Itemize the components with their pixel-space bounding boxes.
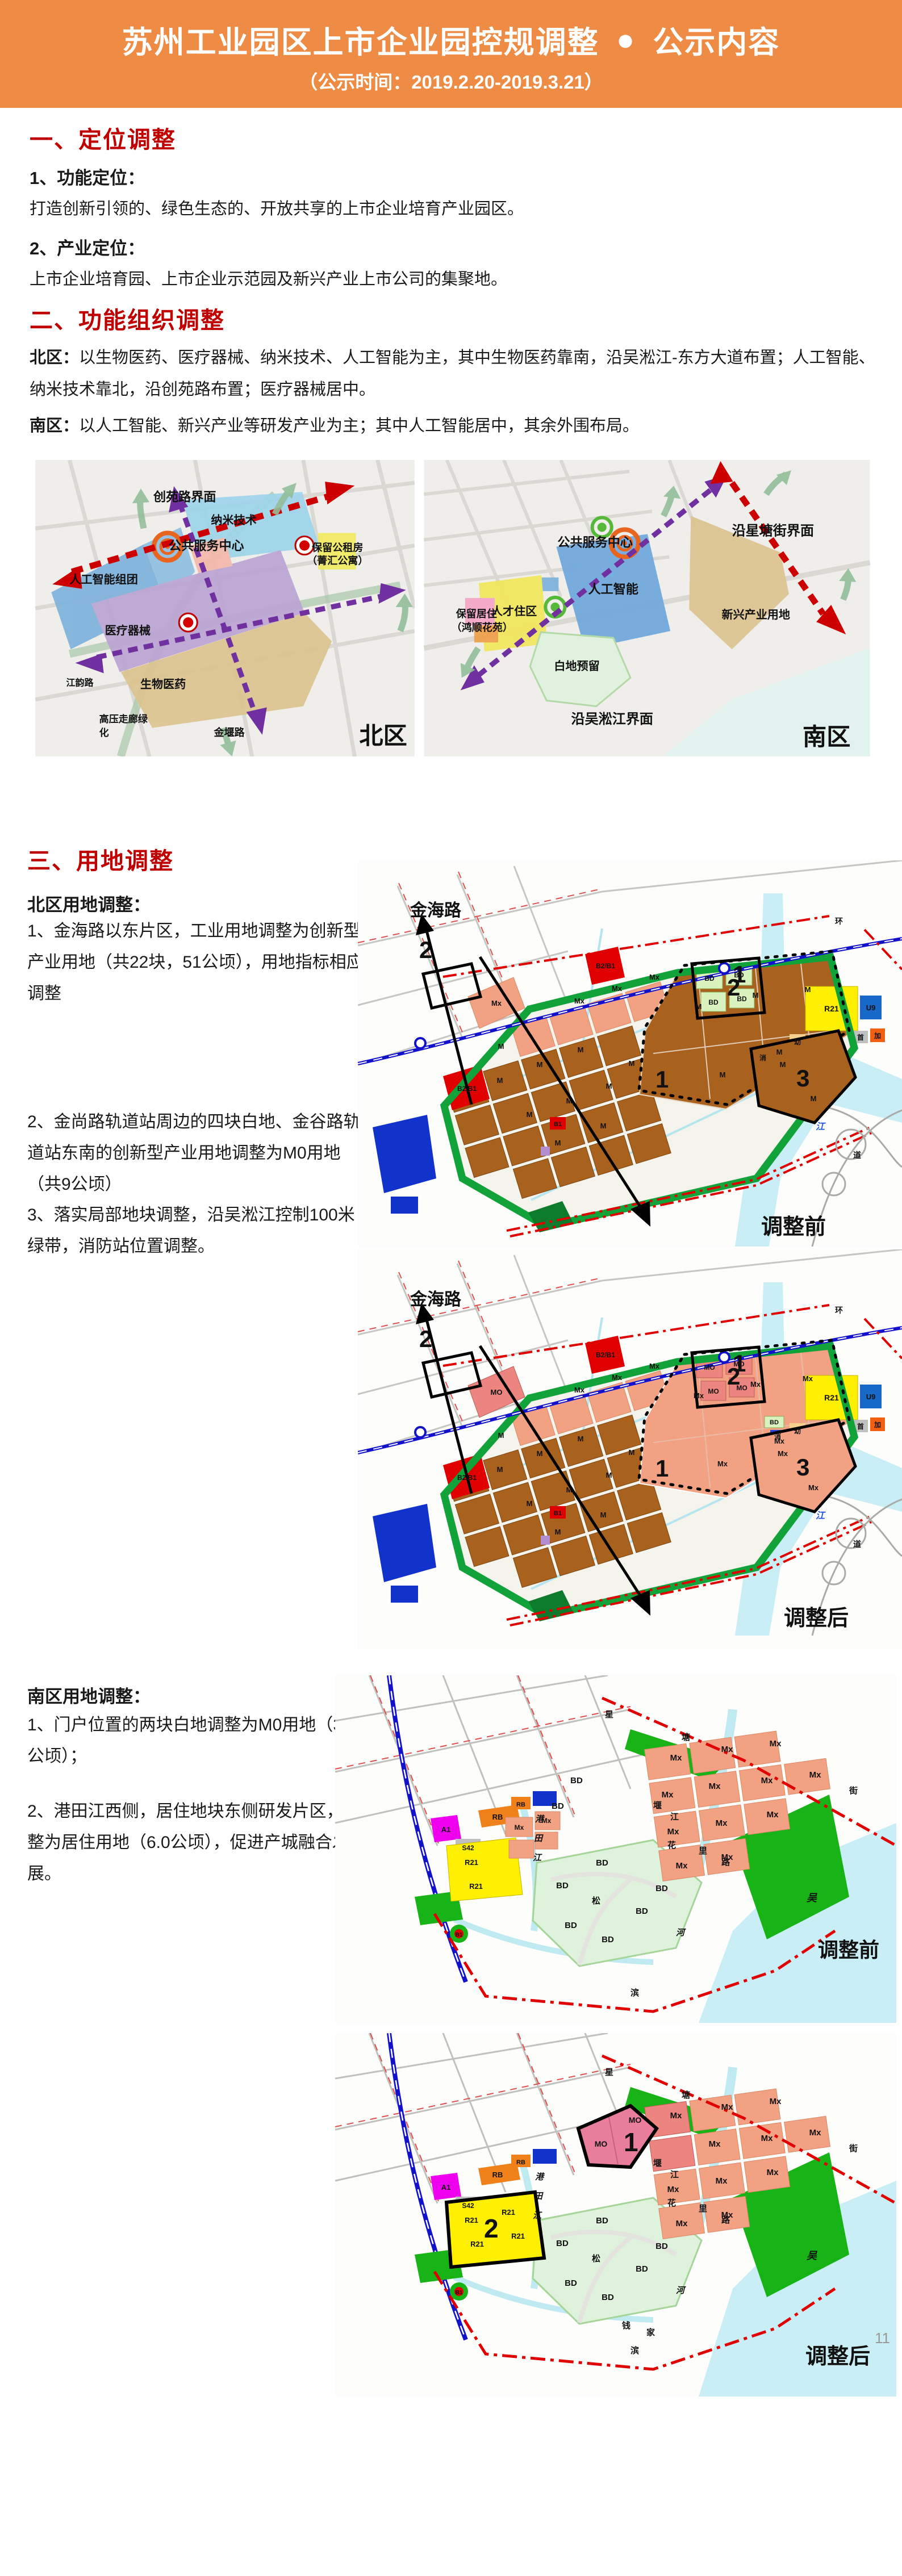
svg-text:BD: BD [602, 1935, 614, 1944]
svg-text:江: 江 [533, 1853, 542, 1863]
svg-text:1: 1 [624, 2127, 638, 2157]
svg-text:Mx: Mx [803, 1374, 813, 1383]
svg-text:Mx: Mx [667, 2185, 679, 2194]
svg-text:田: 田 [534, 1834, 544, 1843]
svg-text:Mx: Mx [612, 1373, 623, 1382]
svg-text:M: M [537, 1449, 543, 1458]
label-baidi: 白地预留 [554, 659, 599, 672]
svg-text:M: M [600, 1511, 607, 1519]
public-notice-page: 苏州工业园区上市企业园控规调整 ● 公示内容 （公示时间：2019.2.20-2… [0, 0, 902, 2576]
label-gaoya1: 高压走廊绿 [99, 713, 148, 725]
svg-text:BD: BD [636, 1906, 648, 1916]
svg-text:Mx: Mx [574, 1386, 585, 1394]
road-char: 环 [835, 917, 843, 926]
north-landuse-item1: 1、金海路以东片区，工业用地调整为创新型产业用地（共22块，51公顷），用地指标… [27, 915, 364, 1009]
road-char: 环 [835, 1306, 843, 1315]
north-function-map-svg: 创苑路界面 纳米技术 公共服务中心 保留公租房 （菁汇公寓） 人工智能组团 医疗… [35, 460, 415, 756]
svg-text:M: M [606, 1082, 612, 1090]
south-landuse-subhead: 南区用地调整： [27, 1682, 151, 1708]
notice-date: （公示时间：2019.2.20-2019.3.21） [0, 67, 902, 94]
svg-text:M: M [811, 1094, 817, 1103]
label-wusong-interface: 沿吴淞江界面 [571, 712, 653, 727]
svg-text:堰: 堰 [653, 1801, 662, 1810]
north-landuse-map-after: MMM MMM MMMM MxMxMxMxMx MxMx MxMxMx MO M… [358, 1249, 902, 1650]
svg-text:BD: BD [570, 1776, 583, 1785]
page-title-main: 苏州工业园区上市企业园控规调整 [122, 17, 599, 62]
label-ai-cluster: 人工智能组团 [69, 572, 137, 586]
svg-text:江: 江 [533, 2211, 542, 2220]
river-label: 江 [816, 1122, 826, 1132]
label-nano: 纳米技术 [211, 513, 256, 526]
svg-text:MO: MO [629, 2115, 642, 2125]
svg-text:BD: BD [552, 1801, 564, 1811]
label-jinhai-road: 金海路 [410, 901, 462, 920]
svg-text:M: M [780, 1060, 786, 1069]
svg-text:BD: BD [704, 975, 715, 982]
label-rencai: 人才住区 [491, 604, 537, 618]
svg-text:Mx: Mx [767, 1810, 779, 1820]
svg-text:幼: 幼 [794, 1038, 801, 1046]
svg-text:里: 里 [699, 1846, 707, 1856]
svg-text:星: 星 [605, 1710, 613, 1720]
section2-south-para: 南区：以人工智能、新兴产业等研发产业为主；其中人工智能居中，其余外围布局。 [30, 410, 884, 442]
svg-text:M: M [629, 1448, 635, 1457]
header-banner: 苏州工业园区上市企业园控规调整 ● 公示内容 （公示时间：2019.2.20-2… [0, 0, 902, 108]
svg-text:2: 2 [727, 1363, 740, 1390]
label-medical: 医疗器械 [105, 624, 151, 637]
svg-text:Mx: Mx [761, 2134, 773, 2143]
svg-text:BD: BD [655, 1884, 668, 1893]
svg-text:里: 里 [699, 2204, 707, 2214]
svg-text:Mx: Mx [667, 1827, 679, 1837]
label-service-center: 公共服务中心 [169, 539, 244, 553]
north-before-svg: MMM MMM MMMM MMMMM MM MxMxMxMx BDBDBDBD … [358, 860, 902, 1247]
svg-text:M: M [527, 1499, 533, 1508]
svg-text:吴: 吴 [807, 2250, 817, 2261]
north-function-map: 创苑路界面 纳米技术 公共服务中心 保留公租房 （菁汇公寓） 人工智能组团 医疗… [35, 460, 415, 756]
svg-text:Mx: Mx [716, 2176, 728, 2186]
road-char: 道 [853, 1540, 861, 1549]
label-jiangyun-road: 江韵路 [66, 678, 94, 688]
svg-text:花: 花 [667, 2198, 676, 2208]
svg-text:M: M [537, 1060, 543, 1069]
svg-text:Mx: Mx [515, 1824, 524, 1831]
svg-text:Mx: Mx [694, 1391, 704, 1400]
road-char: 道 [853, 1151, 861, 1160]
svg-text:R21: R21 [502, 2208, 515, 2217]
section1-item1-title: 1、功能定位： [30, 164, 145, 189]
svg-text:Mx: Mx [676, 1861, 688, 1871]
svg-text:BD: BD [596, 2216, 608, 2226]
svg-text:田: 田 [534, 2192, 544, 2201]
svg-text:R21: R21 [470, 2240, 484, 2248]
svg-text:M: M [606, 1471, 612, 1479]
north-after-svg: MMM MMM MMMM MxMxMxMxMx MxMx MxMxMx MO M… [358, 1249, 902, 1650]
metro-station-icon [415, 1038, 425, 1048]
svg-text:Mx: Mx [662, 1790, 674, 1800]
svg-text:BD: BD [770, 1419, 779, 1426]
svg-text:Mx: Mx [676, 2219, 688, 2228]
page-title: 苏州工业园区上市企业园控规调整 ● 公示内容 [0, 17, 902, 62]
svg-text:江: 江 [670, 1812, 679, 1822]
north-landuse-subhead: 北区用地调整： [27, 890, 151, 916]
svg-text:BD: BD [602, 2293, 614, 2302]
label-baoliu-juzhu2: （鸿顺花苑） [452, 621, 513, 633]
svg-text:Mx: Mx [721, 1745, 733, 1754]
svg-text:幼: 幼 [794, 1427, 801, 1435]
svg-text:堰: 堰 [653, 2159, 662, 2168]
label-jinyan-road: 金堰路 [213, 726, 245, 738]
svg-text:首: 首 [857, 1033, 864, 1042]
svg-text:RB: RB [492, 2171, 503, 2179]
svg-text:Mx: Mx [670, 2111, 682, 2121]
svg-text:塘: 塘 [682, 2090, 690, 2100]
svg-text:1: 1 [655, 1066, 669, 1093]
svg-text:M: M [555, 1528, 561, 1536]
svg-text:Mx: Mx [770, 2097, 782, 2106]
svg-text:M: M [578, 1435, 584, 1443]
svg-text:Mx: Mx [809, 2128, 821, 2138]
svg-text:MO: MO [491, 1388, 503, 1396]
label-ai: 人工智能 [588, 582, 638, 596]
svg-text:滨: 滨 [630, 1988, 639, 1998]
north-landuse-item2: 2、金尚路轨道站周边的四块白地、金谷路轨道站东南的创新型产业用地调整为M0用地（… [27, 1106, 364, 1200]
label-jinhai-road: 金海路 [410, 1290, 462, 1309]
svg-text:Mx: Mx [750, 1380, 761, 1389]
svg-text:Mx: Mx [716, 1818, 728, 1828]
label-baoliu-juzhu: 保留居住 [456, 608, 497, 620]
svg-text:2: 2 [727, 974, 740, 1001]
svg-text:M: M [555, 1139, 561, 1147]
svg-text:U9: U9 [866, 1392, 876, 1401]
label-chuangyuan-interface: 创苑路界面 [153, 490, 216, 504]
svg-text:BD: BD [565, 2278, 577, 2288]
svg-text:M: M [527, 1110, 533, 1119]
before-caption: 调整前 [761, 1215, 826, 1239]
svg-text:Mx: Mx [809, 1770, 821, 1780]
svg-text:首: 首 [857, 1422, 864, 1431]
svg-text:2: 2 [484, 2214, 499, 2243]
svg-text:Mx: Mx [574, 997, 585, 1005]
svg-text:MO: MO [595, 2139, 608, 2148]
section1-item1-body: 打造创新引领的、绿色生态的、开放共享的上市企业培育产业园区。 [30, 193, 882, 225]
south-landuse-item1: 1、门户位置的两块白地调整为M0用地（3.4公顷）； [27, 1709, 364, 1772]
blue-parcel2 [391, 1197, 418, 1214]
svg-text:B2/B1: B2/B1 [596, 962, 615, 970]
svg-text:Mx: Mx [721, 2102, 733, 2112]
page-number: 11 [875, 2330, 890, 2347]
svg-text:街: 街 [849, 1785, 858, 1796]
svg-text:R21: R21 [511, 2232, 525, 2240]
south-after-svg: BDBDBD BDBDBD MxMxMx MxMxMx MxMxMx MxMx … [329, 2033, 902, 2397]
north-body: 以生物医药、医疗器械、纳米技术、人工智能为主，其中生物医药靠南，沿吴淞江-东方大… [30, 349, 875, 399]
page-title-suffix: 公示内容 [653, 17, 780, 62]
svg-text:S42: S42 [462, 2202, 474, 2210]
blue-parcel2 [391, 1586, 418, 1603]
section1-item2-body: 上市企业培育园、上市企业示范园及新兴产业上市公司的集聚地。 [30, 264, 882, 295]
south-landuse-map-after: BDBDBD BDBDBD MxMxMx MxMxMx MxMxMx MxMx … [329, 2033, 902, 2397]
svg-text:家: 家 [646, 2327, 655, 2337]
svg-text:松: 松 [592, 1896, 600, 1906]
svg-text:路: 路 [721, 2215, 730, 2225]
svg-text:B2/B1: B2/B1 [596, 1351, 615, 1359]
svg-text:Mx: Mx [670, 1753, 682, 1763]
svg-text:Mx: Mx [767, 2168, 779, 2177]
svg-text:M: M [578, 1046, 584, 1054]
svg-text:Mx: Mx [770, 1739, 782, 1749]
svg-text:路: 路 [721, 1857, 730, 1867]
section1-item2-title: 2、产业定位： [30, 234, 145, 260]
section3-heading: 三、用地调整 [27, 842, 174, 876]
svg-text:RB: RB [492, 1813, 503, 1821]
north-label: 北区： [30, 349, 79, 367]
svg-text:R21: R21 [465, 1858, 478, 1867]
svg-text:消: 消 [774, 1432, 781, 1441]
label-gongzufang: 保留公租房 [311, 542, 363, 554]
svg-text:M: M [497, 1465, 503, 1474]
south-function-map: 沿星塘街界面 公共服务中心 人工智能 新兴产业用地 保留居住 （鸿顺花苑） 人才… [423, 460, 871, 756]
svg-text:滨: 滨 [630, 2345, 639, 2356]
svg-text:Mx: Mx [808, 1483, 819, 1492]
svg-text:M: M [498, 1431, 504, 1440]
svg-text:Mx: Mx [778, 1449, 788, 1458]
svg-text:R21: R21 [465, 2216, 478, 2224]
south-before-svg: BDBDBD BDBDBD BDBD MxMxMx MxMxMxMx MxMxM… [329, 1675, 902, 2023]
svg-text:R21: R21 [824, 1004, 839, 1013]
south-function-map-svg: 沿星塘街界面 公共服务中心 人工智能 新兴产业用地 保留居住 （鸿顺花苑） 人才… [423, 460, 871, 756]
w-parcel [541, 1536, 550, 1545]
svg-text:R21: R21 [469, 1882, 483, 1891]
svg-text:M: M [696, 1002, 702, 1011]
svg-text:花: 花 [667, 1840, 676, 1850]
svg-text:松: 松 [592, 2253, 600, 2264]
svg-text:3: 3 [796, 1454, 809, 1481]
river-label: 江 [816, 1511, 826, 1521]
label-xingtang-interface: 沿星塘街界面 [732, 523, 814, 539]
svg-text:Mx: Mx [709, 2139, 721, 2149]
svg-text:塘: 塘 [682, 1732, 690, 1742]
svg-text:B1: B1 [456, 2290, 463, 2296]
svg-text:M: M [497, 1076, 503, 1085]
svg-text:MO: MO [708, 1387, 719, 1395]
svg-text:M: M [600, 1122, 607, 1130]
svg-text:星: 星 [605, 2068, 613, 2077]
south-landuse-item2: 2、港田江西侧，居住地块东侧研发片区，调整为居住用地（6.0公顷），促进产城融合… [27, 1796, 364, 1889]
svg-text:吴: 吴 [807, 1892, 817, 1904]
svg-text:M: M [720, 1070, 726, 1079]
south-body: 以人工智能、新兴产业等研发产业为主；其中人工智能居中，其余外围布局。 [79, 417, 639, 435]
svg-text:B1: B1 [554, 1510, 562, 1517]
svg-text:Mx: Mx [717, 1460, 728, 1468]
svg-text:Mx: Mx [761, 1776, 773, 1785]
svg-text:1: 1 [655, 1455, 669, 1482]
after-caption: 调整后 [784, 1607, 849, 1630]
svg-text:Mx: Mx [612, 984, 623, 993]
svg-text:M: M [498, 1042, 504, 1051]
svg-text:A1: A1 [441, 1825, 451, 1834]
svg-text:BD: BD [636, 2264, 648, 2274]
svg-text:加: 加 [874, 1031, 881, 1040]
after-caption: 调整后 [805, 2345, 870, 2369]
bullet-icon: ● [616, 22, 636, 57]
svg-text:R21: R21 [824, 1393, 839, 1402]
w-parcel [541, 1147, 550, 1156]
svg-text:BD: BD [596, 1858, 608, 1868]
svg-text:B1: B1 [456, 1932, 463, 1938]
metro-station-icon [719, 963, 729, 973]
svg-text:U9: U9 [866, 1003, 876, 1012]
svg-text:3: 3 [796, 1065, 809, 1092]
section2-heading: 二、功能组织调整 [30, 301, 225, 335]
svg-text:BD: BD [655, 2242, 668, 2251]
svg-text:B1: B1 [554, 1121, 562, 1128]
svg-text:消: 消 [759, 1053, 766, 1062]
svg-text:BD: BD [556, 1881, 569, 1891]
section1-heading: 一、定位调整 [30, 120, 176, 154]
before-caption: 调整前 [818, 1938, 879, 1962]
south-label: 南区： [30, 417, 79, 435]
south-map-caption: 南区 [803, 724, 850, 750]
svg-text:A1: A1 [441, 2183, 451, 2192]
north-map-caption: 北区 [359, 722, 407, 749]
svg-text:钱: 钱 [622, 2320, 630, 2331]
svg-text:RB: RB [516, 2159, 525, 2166]
svg-text:M: M [629, 1059, 635, 1068]
svg-text:加: 加 [874, 1420, 881, 1429]
north-landuse-item3: 3、落实局部地块调整，沿吴淞江控制100米绿带，消防站位置调整。 [27, 1199, 364, 1262]
section2-north-para: 北区：以生物医药、医疗器械、纳米技术、人工智能为主，其中生物医药靠南，沿吴淞江-… [30, 342, 884, 405]
label-gaoya2: 化 [99, 727, 109, 738]
svg-text:M: M [805, 985, 811, 994]
north-landuse-map-before: MMM MMM MMMM MMMMM MM MxMxMxMx BDBDBDBD … [358, 860, 902, 1247]
svg-text:Mx: Mx [709, 1782, 721, 1791]
svg-text:S42: S42 [462, 1844, 474, 1852]
svg-text:BD: BD [556, 2239, 569, 2248]
svg-text:Mx: Mx [649, 1362, 660, 1370]
svg-text:M: M [753, 991, 759, 1000]
label-gongzufang2: （菁汇公寓） [307, 555, 368, 567]
svg-text:Mx: Mx [649, 973, 660, 981]
svg-text:江: 江 [670, 2169, 679, 2180]
metro-station-icon [415, 1427, 425, 1437]
metro-station-icon [719, 1352, 729, 1362]
svg-text:街: 街 [849, 2143, 858, 2153]
svg-text:BD: BD [565, 1921, 577, 1930]
label-service-center: 公共服务中心 [557, 536, 632, 550]
svg-text:RB: RB [516, 1801, 525, 1808]
svg-text:M: M [776, 1048, 783, 1056]
label-bio: 生物医药 [140, 678, 186, 691]
svg-text:BD: BD [708, 998, 719, 1006]
svg-text:MO: MO [704, 1364, 715, 1371]
south-landuse-map-before: BDBDBD BDBDBD BDBD MxMxMx MxMxMxMx MxMxM… [329, 1675, 902, 2023]
label-xinxing: 新兴产业用地 [722, 608, 790, 621]
svg-text:Mx: Mx [491, 999, 502, 1007]
